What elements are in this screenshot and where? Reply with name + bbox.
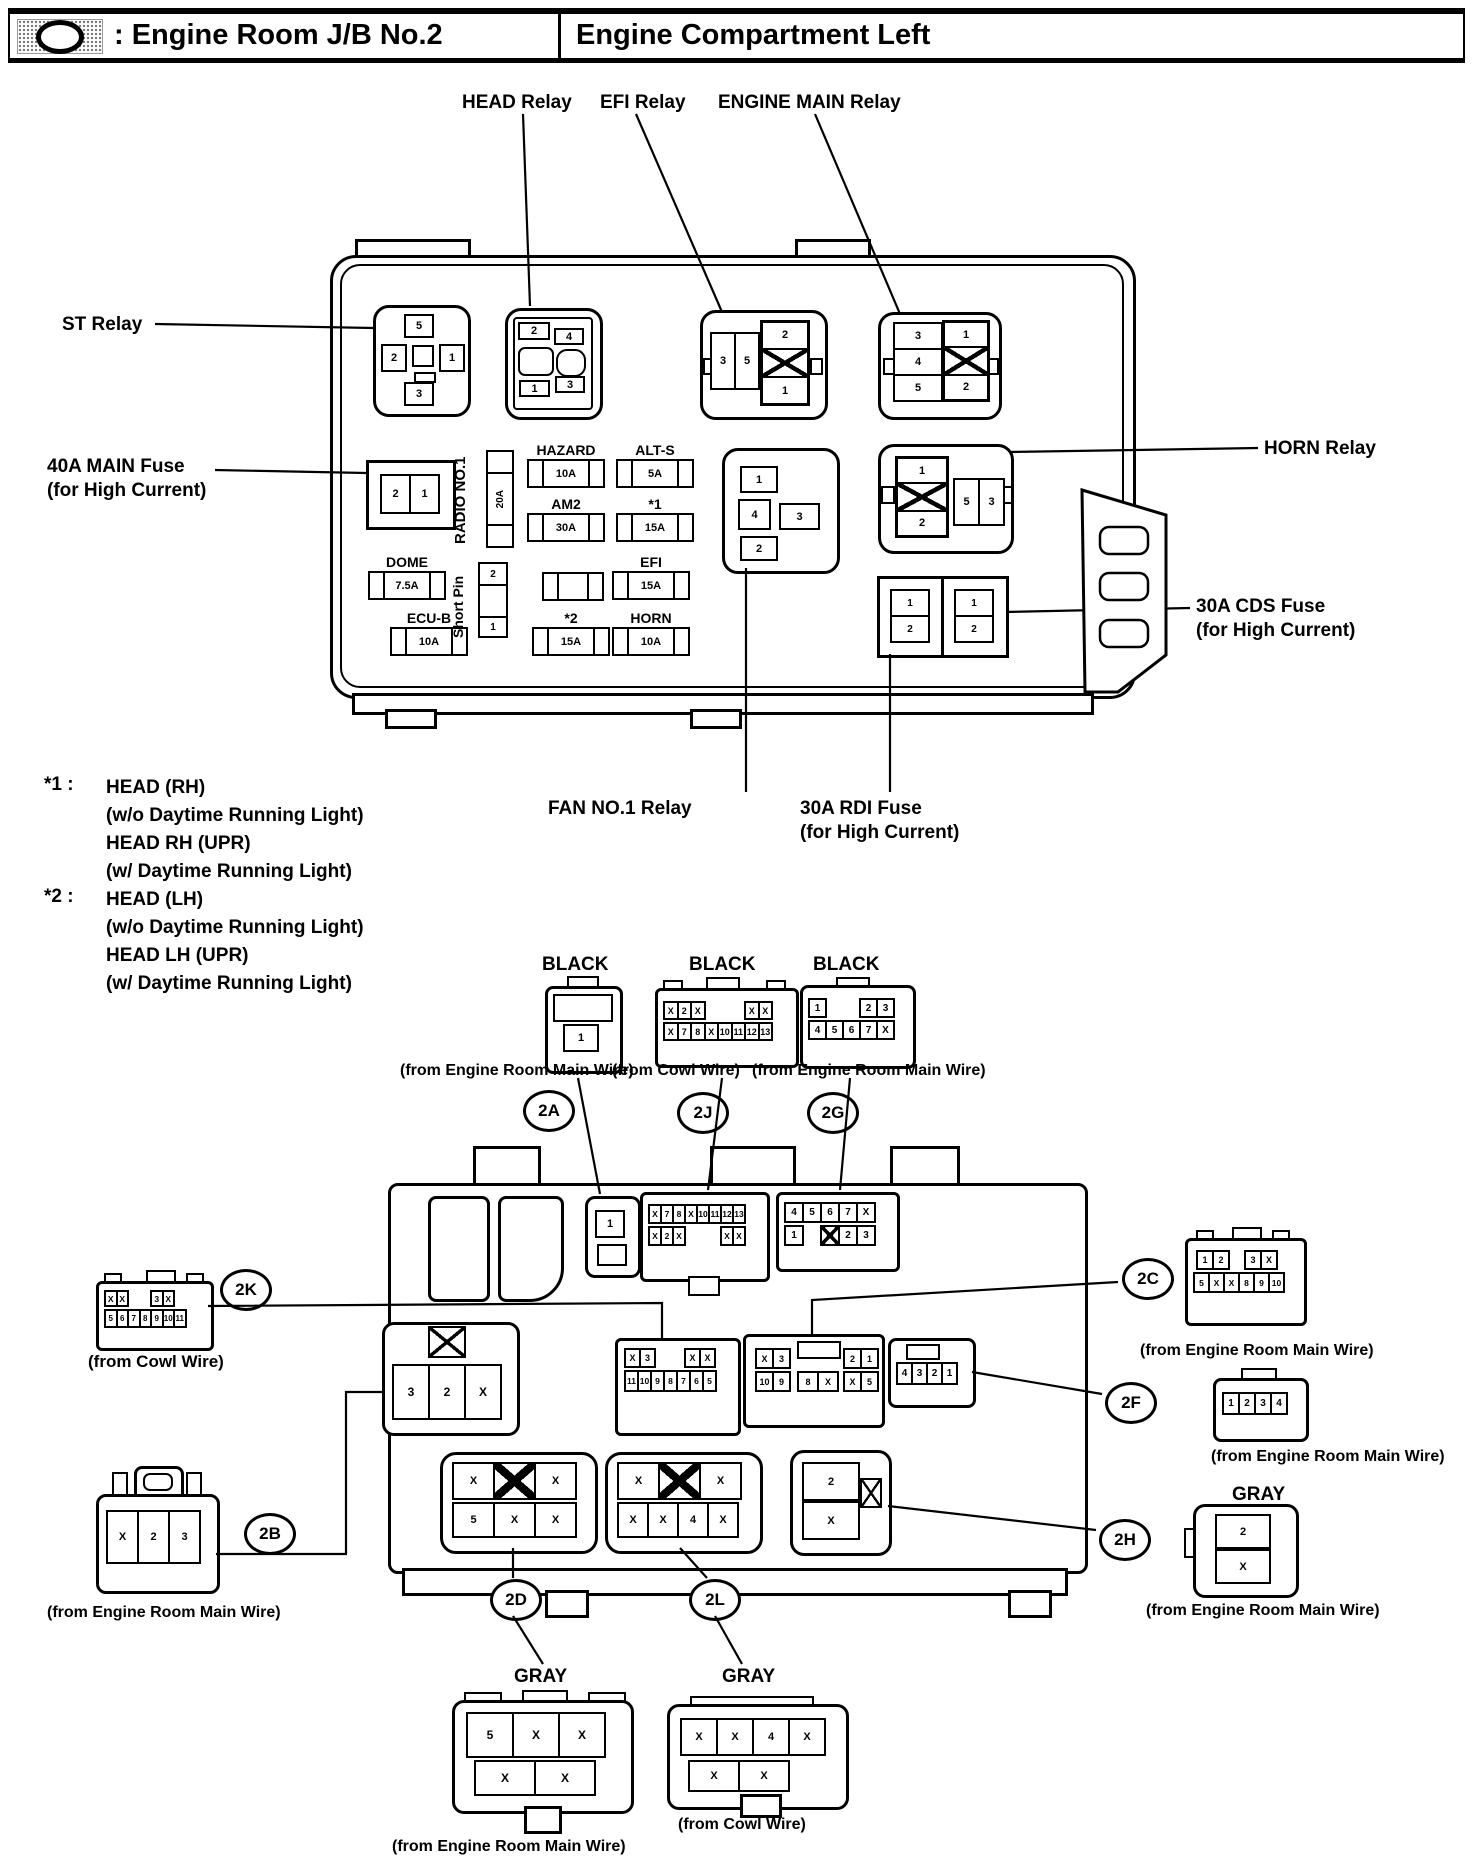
connector-pin-row: 21	[843, 1348, 877, 1369]
pin-cell: X	[716, 1718, 754, 1756]
am2-fuse: AM2 30A	[527, 496, 605, 542]
st-relay-pin: 5	[404, 314, 434, 338]
engine-main-pin: 5	[895, 376, 941, 400]
main-fuse-sublabel: (for High Current)	[47, 480, 206, 502]
wire-source-label: (from Engine Room Main Wire)	[392, 1838, 626, 1856]
fuse-pin: 2	[892, 617, 928, 641]
box-foot	[690, 709, 742, 729]
pin-cell: 7	[838, 1202, 858, 1223]
horn-relay-pin: 3	[980, 480, 1003, 524]
callout-2a: 2A	[523, 1090, 575, 1132]
pin-cell	[802, 1225, 822, 1246]
junction-block-icon	[17, 19, 103, 54]
pin-cell: X	[788, 1718, 826, 1756]
connector-pin-row: X78X10111213	[663, 1022, 771, 1041]
wire-source-label: (from Engine Room Main Wire)	[1140, 1342, 1374, 1360]
connector-pin-row: 1234	[1222, 1392, 1286, 1415]
hazard-fuse: HAZARD 10A	[527, 442, 605, 488]
connector-pin-row: X2XXX	[663, 1001, 771, 1020]
main-fuse-label: 40A MAIN Fuse	[47, 456, 185, 478]
connector-pin-row: X3	[755, 1348, 789, 1369]
fuse-amp: 10A	[544, 461, 588, 486]
connector-pin: X	[802, 1501, 860, 1540]
pin-cell: 4	[1270, 1392, 1288, 1415]
connector-pin-row: 123	[784, 1225, 874, 1246]
footnote-key: *2 :	[44, 886, 74, 908]
header-divider	[558, 14, 561, 58]
wire-source-label: (from Cowl Wire)	[612, 1062, 740, 1080]
pin-cell: 6	[820, 1202, 840, 1223]
fuse-name: *2	[532, 610, 610, 627]
connector-pin-row: 567891011	[104, 1309, 185, 1328]
wire-source-label: (from Engine Room Main Wire)	[752, 1062, 986, 1080]
pin-cell: 5	[466, 1712, 514, 1758]
fuse-name: AM2	[527, 496, 605, 513]
efi-relay-pin: 5	[736, 334, 758, 388]
pin-cell: X	[464, 1364, 502, 1420]
efi-fuse: EFI 15A	[612, 554, 690, 600]
pin-cell: 9	[772, 1371, 791, 1392]
wire-source-label: (from Cowl Wire)	[678, 1816, 806, 1834]
pin-cell: X	[534, 1462, 577, 1500]
header-right-title: Engine Compartment Left	[576, 19, 930, 52]
engine-main-right-block: 1 2	[942, 320, 990, 402]
pin-cell: X	[699, 1348, 716, 1368]
pin-cell	[820, 1225, 840, 1246]
pin-cell: 3	[772, 1348, 791, 1369]
crossed-cell	[898, 482, 946, 512]
connector-pin: X	[1215, 1549, 1271, 1584]
slot-tab	[810, 358, 823, 375]
efi-relay-right-block: 2 1	[760, 320, 810, 406]
connector-pin-row: X3XX	[624, 1348, 714, 1368]
connector-latch	[524, 1806, 562, 1834]
fuse-name: HAZARD	[527, 442, 605, 459]
st-relay-center	[412, 345, 434, 367]
pin-cell: X	[738, 1760, 790, 1792]
pin-cell: X	[493, 1502, 536, 1538]
pin-cell: X	[534, 1502, 577, 1538]
callout-2b: 2B	[244, 1513, 296, 1555]
pin-cell: 4	[677, 1502, 709, 1538]
rdi-fuse-sublabel: (for High Current)	[800, 822, 959, 844]
connector-color-label: GRAY	[514, 1666, 567, 1688]
header-bar: : Engine Room J/B No.2 Engine Compartmen…	[8, 8, 1465, 63]
fuse-pin: 1	[956, 591, 992, 617]
short-pin-label: Short Pin	[450, 560, 466, 638]
pin-cell: X	[474, 1760, 536, 1796]
engine-main-pin: 3	[895, 324, 941, 350]
cds-fuse-label: 30A CDS Fuse	[1196, 596, 1325, 618]
main-fuse-pins: 2 1	[380, 474, 440, 514]
engine-main-relay-label: ENGINE MAIN Relay	[718, 92, 901, 114]
fan-relay-pin: 3	[779, 503, 820, 530]
cds-fuse-pins: 1 2	[954, 589, 994, 643]
connector-pin-row: 4321	[896, 1362, 956, 1385]
connector-pin: 1	[595, 1210, 625, 1238]
head-relay-pin: 3	[555, 376, 585, 393]
spare-fuse	[542, 572, 604, 601]
callout-2h: 2H	[1099, 1519, 1151, 1561]
short-pin-body: 2 1	[478, 562, 508, 638]
fuse-name: ALT-S	[616, 442, 694, 459]
head-relay-pin: 1	[519, 380, 550, 397]
horn-relay-pin: 1	[898, 459, 946, 482]
connector-pin-row: 4567X	[784, 1202, 874, 1223]
pin-cell: 2	[838, 1225, 858, 1246]
fan-relay-label: FAN NO.1 Relay	[548, 798, 692, 820]
star1-fuse: *1 15A	[616, 496, 694, 542]
short-pin-cell: 2	[480, 564, 506, 586]
wire-source-label: (from Cowl Wire)	[88, 1352, 224, 1372]
pin-cell: 3	[876, 998, 895, 1018]
head-relay-pin: 2	[518, 322, 550, 340]
pin-cell	[658, 1462, 701, 1500]
efi-relay-left-block: 3 5	[710, 332, 760, 390]
pin-cell: 5	[860, 1371, 879, 1392]
callout-2c: 2C	[1122, 1258, 1174, 1300]
connector-pin-row: XX4X	[680, 1718, 824, 1756]
crossed-cell	[945, 346, 987, 376]
callout-2j: 2J	[677, 1092, 729, 1134]
connector-pin-row: X5	[843, 1371, 877, 1392]
st-relay-pin: 2	[381, 344, 407, 372]
connector-pin: 2	[802, 1462, 860, 1501]
connector-pin-row: 5XX	[452, 1502, 575, 1538]
connector-pin-row: X78X10111213	[648, 1204, 744, 1224]
blank-cavity	[428, 1196, 490, 1302]
fan-relay-pin: 4	[738, 499, 771, 530]
fan-relay-pin: 2	[740, 536, 778, 561]
pin-cell: X	[680, 1718, 718, 1756]
footnote-lines: HEAD (RH)(w/o Daytime Running Light) HEA…	[106, 774, 364, 886]
fuse-pin: 2	[956, 617, 992, 641]
connector-pin-row: 32X	[392, 1364, 500, 1420]
fuse-amp: 15A	[549, 629, 593, 654]
pin-cell: X	[817, 1371, 839, 1392]
callout-2g: 2G	[807, 1092, 859, 1134]
header-left-title: : Engine Room J/B No.2	[114, 19, 443, 52]
connector-pin-row: 123X	[1196, 1250, 1276, 1270]
connector-pin-row: X23	[106, 1510, 199, 1564]
dome-fuse: DOME 7.5A	[368, 554, 446, 600]
connector-color-label: GRAY	[1232, 1484, 1285, 1506]
radio-fuse-label: RADIO NO.1	[452, 432, 469, 544]
head-relay-pin: 4	[554, 328, 584, 345]
connector-pin-row: XX	[452, 1462, 575, 1500]
crossed-box	[428, 1326, 466, 1358]
head-relay-label: HEAD Relay	[462, 92, 572, 114]
horn-relay-pin: 5	[955, 480, 980, 524]
pin-cell: 1	[860, 1348, 879, 1369]
connector-latch	[740, 1794, 782, 1818]
pin-cell: 3	[392, 1364, 430, 1420]
relay-cavity	[556, 349, 586, 377]
callout-2d: 2D	[490, 1579, 542, 1621]
connector-latch	[688, 1276, 720, 1296]
connector-color-label: BLACK	[689, 954, 756, 976]
pin-cell: 13	[732, 1204, 746, 1224]
box-foot	[385, 709, 437, 729]
pin-cell: 5	[802, 1202, 822, 1223]
pin-cell	[493, 1462, 536, 1500]
fuse-name: HORN	[612, 610, 690, 627]
crossed-box	[860, 1478, 882, 1508]
fan-relay-pin: 1	[740, 466, 778, 493]
efi-relay-pin: 1	[763, 378, 807, 403]
st-relay-pin: 1	[439, 344, 465, 372]
connector-color-label: GRAY	[722, 1666, 775, 1688]
connector-latch	[597, 1244, 627, 1266]
short-pin-cell: 1	[480, 616, 506, 636]
slot-tab	[881, 486, 895, 504]
pin-cell: 5	[702, 1370, 717, 1392]
connector-pin-row: XX	[617, 1462, 740, 1500]
connector-latch	[906, 1344, 940, 1360]
connector-pin-row: XX	[688, 1760, 788, 1792]
engine-main-pin: 2	[945, 376, 987, 399]
pin-cell: 1	[941, 1362, 958, 1385]
wire-source-label: (from Engine Room Main Wire)	[400, 1062, 634, 1080]
rdi-fuse-label: 30A RDI Fuse	[800, 798, 922, 820]
fuse-name: EFI	[612, 554, 690, 571]
connector-pin-row: 111098765	[624, 1370, 715, 1392]
pin-cell: 8	[797, 1371, 819, 1392]
connector-pin: 2	[1215, 1514, 1271, 1549]
radio-fuse-amp: 20A	[495, 490, 506, 508]
fuse-amp: 10A	[629, 629, 673, 654]
wire-source-label: (from Engine Room Main Wire)	[1146, 1602, 1380, 1620]
callout-2k: 2K	[220, 1269, 272, 1311]
pin-cell: 2	[137, 1510, 170, 1564]
pin-cell: 3	[168, 1510, 201, 1564]
pin-cell: 1	[784, 1225, 804, 1246]
engine-main-pin: 4	[895, 350, 941, 376]
connector-pin-row: XX	[474, 1760, 594, 1796]
pin-cell: 4	[752, 1718, 790, 1756]
wire-source-label: (from Engine Room Main Wire)	[47, 1604, 281, 1622]
st-relay-label: ST Relay	[62, 314, 142, 336]
fuse-amp: 5A	[633, 461, 677, 486]
pin-cell: X	[647, 1502, 679, 1538]
alt-s-fuse: ALT-S 5A	[616, 442, 694, 488]
fusebox-diagram-page: : Engine Room J/B No.2 Engine Compartmen…	[0, 0, 1472, 1866]
box-foot	[1008, 1590, 1052, 1618]
pin-cell: 10	[1268, 1272, 1285, 1293]
fuse-amp: 15A	[633, 515, 677, 540]
connector-pin-row: 4567X	[808, 1020, 893, 1040]
pin-cell: 2	[428, 1364, 466, 1420]
efi-relay-pin: 3	[712, 334, 736, 388]
connector-pin-row: 5XX	[466, 1712, 604, 1758]
pin-cell: X	[688, 1760, 740, 1792]
pin-cell: 11	[173, 1309, 187, 1328]
connector-pin: 1	[563, 1024, 599, 1052]
footnote-key: *1 :	[44, 774, 74, 796]
cds-fuse-sublabel: (for High Current)	[1196, 620, 1355, 642]
horn-relay-pin: 2	[898, 512, 946, 535]
fuse-amp: 30A	[544, 515, 588, 540]
horn-relay-right-block: 5 3	[953, 478, 1005, 526]
pin-cell: X	[758, 1001, 774, 1020]
connector-pin-row: 8X	[797, 1371, 837, 1392]
pin-cell: 5	[452, 1502, 495, 1538]
pin-cell: 3	[856, 1225, 876, 1246]
pin-cell: X	[699, 1462, 742, 1500]
connector-lock-slot	[143, 1473, 173, 1491]
fuse-amp: 10A	[407, 629, 451, 654]
pin-cell: X	[512, 1712, 560, 1758]
pin-cell: 13	[758, 1022, 774, 1041]
horn-relay-left-block: 1 2	[895, 456, 949, 538]
connector-color-label: BLACK	[813, 954, 880, 976]
engine-main-pin: 1	[945, 323, 987, 346]
pin-cell: X	[856, 1202, 876, 1223]
pin-cell: X	[534, 1760, 596, 1796]
fuse-pin: 1	[892, 591, 928, 617]
pin-cell: 4	[784, 1202, 804, 1223]
pin-cell: X	[558, 1712, 606, 1758]
pin-cell: X	[162, 1290, 176, 1307]
connector-pin-row: XX4X	[617, 1502, 737, 1538]
box-foot	[545, 1590, 589, 1618]
pin-cell: X	[732, 1226, 746, 1246]
connector-pin-row: 123	[808, 998, 893, 1018]
callout-2l: 2L	[689, 1579, 741, 1621]
horn-fuse: HORN 10A	[612, 610, 690, 656]
efi-relay-pin: 2	[763, 323, 807, 348]
efi-relay-label: EFI Relay	[600, 92, 686, 114]
callout-2f: 2F	[1105, 1382, 1157, 1424]
main-fuse-pin: 2	[382, 476, 411, 512]
wire-source-label: (from Engine Room Main Wire)	[1211, 1448, 1445, 1466]
blank-cavity	[498, 1196, 564, 1302]
horn-relay-label: HORN Relay	[1264, 438, 1376, 460]
main-fuse-pin: 1	[411, 476, 438, 512]
relay-cavity	[518, 347, 554, 376]
fuse-name: DOME	[368, 554, 446, 571]
pin-cell: X	[707, 1502, 739, 1538]
radio-fuse-body: 20A	[486, 450, 514, 548]
engine-main-left-block: 3 4 5	[893, 322, 943, 402]
star2-fuse: *2 15A	[532, 610, 610, 656]
connector-color-label: BLACK	[542, 954, 609, 976]
fuse-amp: 15A	[629, 573, 673, 598]
pin-cell: X	[617, 1502, 649, 1538]
connector-latch	[797, 1341, 841, 1359]
pin-cell: X	[876, 1020, 895, 1040]
pin-cell: X	[617, 1462, 660, 1500]
rdi-fuse-pins: 1 2	[890, 589, 930, 643]
pin-cell: X	[106, 1510, 139, 1564]
fuse-amp: 7.5A	[385, 573, 429, 598]
connector-pin-row: 109	[755, 1371, 789, 1392]
connector-pin-row: 5XX8910	[1193, 1272, 1283, 1293]
fuse-name: *1	[616, 496, 694, 513]
connector-pin-row: X2XXX	[648, 1226, 744, 1246]
connector-pin-row: XX3X	[104, 1290, 173, 1307]
connector-detail	[553, 994, 613, 1022]
pin-cell: X	[1260, 1250, 1278, 1270]
footnote-lines: HEAD (LH)(w/o Daytime Running Light) HEA…	[106, 886, 364, 998]
pin-cell: X	[452, 1462, 495, 1500]
st-relay-pin: 3	[404, 382, 434, 406]
crossed-cell	[763, 348, 807, 379]
